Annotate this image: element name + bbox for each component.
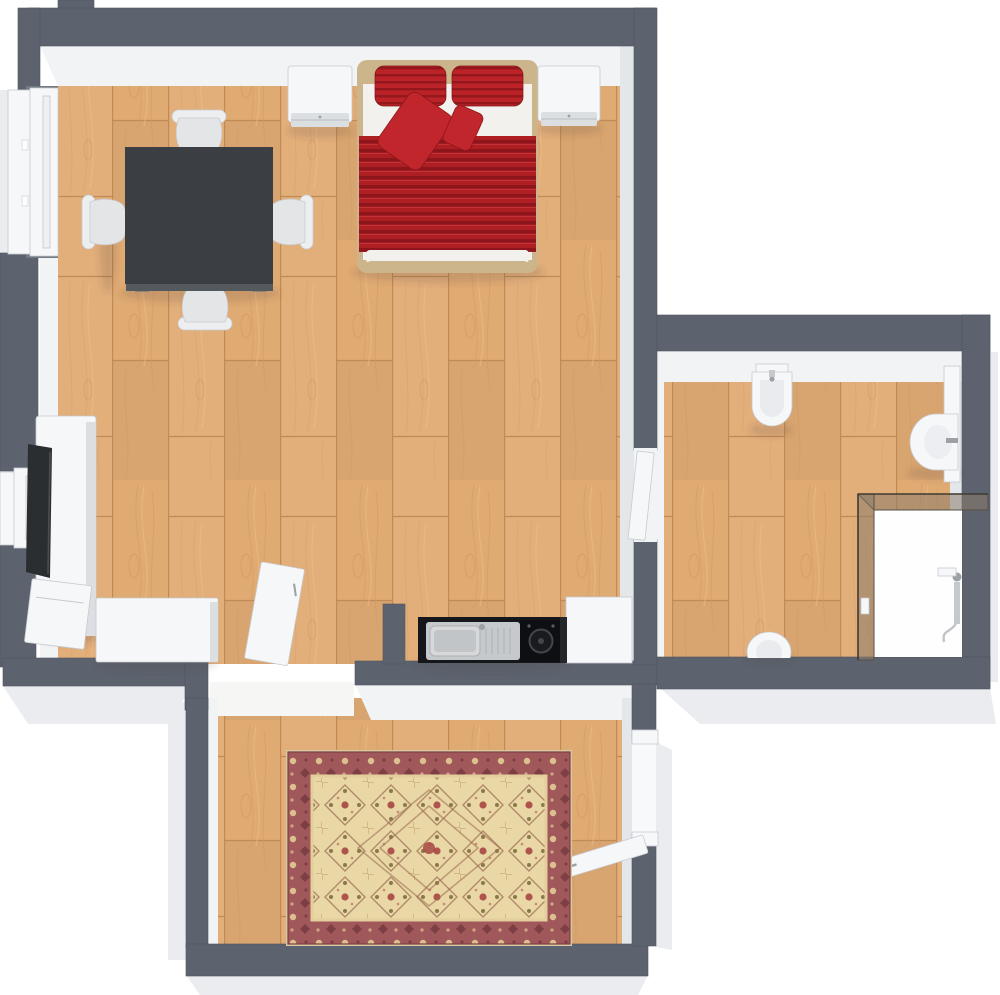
- chair-left: [82, 195, 127, 249]
- kitchen-counter: [418, 617, 566, 663]
- dining-table: [125, 147, 273, 292]
- window-large: [8, 86, 58, 258]
- floor-plan-image: [0, 0, 1000, 995]
- floor-plan-svg: [0, 0, 1000, 995]
- kitchen-cabinet: [560, 597, 632, 663]
- nightstand-right: [538, 66, 600, 126]
- chair-right: [269, 195, 314, 249]
- oriental-rug: [286, 750, 572, 946]
- double-bed: [357, 60, 538, 273]
- nightstand-left: [288, 66, 352, 127]
- side-unit: [24, 579, 91, 650]
- chair-bottom: [178, 286, 232, 331]
- lowboard: [96, 598, 218, 662]
- threshold-entry-room: [210, 682, 354, 716]
- threshold-main-door: [630, 742, 660, 834]
- bidet: [752, 364, 792, 426]
- tv: [26, 444, 52, 578]
